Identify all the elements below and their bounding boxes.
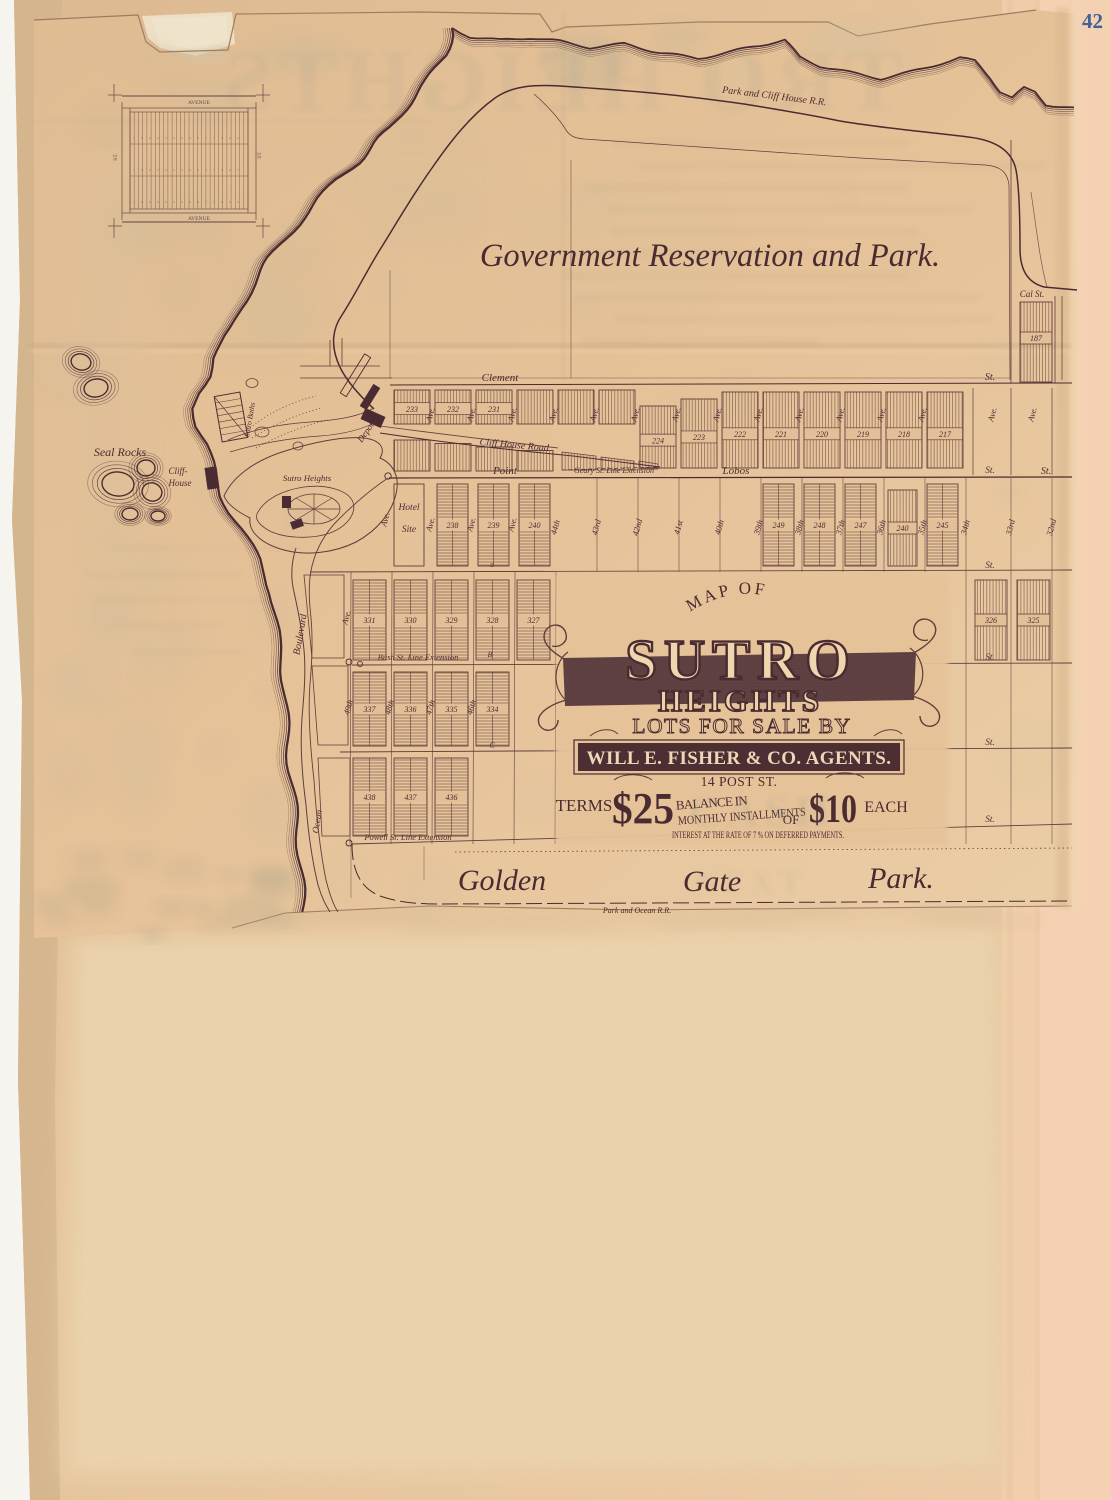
svg-text:231: 231 [488,405,500,414]
svg-text:$25: $25 [612,784,674,833]
svg-text:334: 334 [486,705,499,714]
svg-text:Sutro Heights: Sutro Heights [283,473,332,483]
svg-text:St.: St. [985,372,995,383]
svg-text:EACH: EACH [864,799,908,816]
svg-text:217: 217 [939,430,952,439]
svg-text:221: 221 [775,430,787,439]
svg-text:249: 249 [773,521,785,530]
svg-text:233: 233 [406,405,418,414]
svg-text:Cliff-: Cliff- [168,466,187,476]
svg-text:438: 438 [364,793,376,802]
svg-text:NEXT: NEXT [694,865,806,901]
svg-text:St.: St. [1041,466,1051,477]
svg-text:248: 248 [814,521,826,530]
svg-text:239: 239 [488,521,500,530]
svg-text:42: 42 [1082,9,1103,33]
svg-text:224: 224 [652,436,664,445]
svg-text:Government Reservation and Par: Government Reservation and Park. [480,238,940,274]
svg-text:223: 223 [693,433,705,442]
svg-text:220: 220 [816,430,828,439]
svg-text:218: 218 [898,430,910,439]
svg-text:HEIGHTS: HEIGHTS [658,683,822,718]
svg-text:Clement: Clement [482,372,520,384]
svg-text:LOTS FOR SALE BY: LOTS FOR SALE BY [632,714,851,738]
svg-text:187: 187 [1030,334,1043,343]
svg-text:St.: St. [985,560,994,570]
svg-text:222: 222 [734,430,746,439]
svg-text:Golden: Golden [458,864,546,897]
svg-text:WILL E. FISHER & CO. AGENTS.: WILL E. FISHER & CO. AGENTS. [587,748,892,769]
svg-text:St.: St. [985,737,994,747]
svg-text:TRO HEIGHTS: TRO HEIGHTS [218,33,903,130]
svg-text:AVENUE: AVENUE [188,216,211,222]
svg-text:ST.: ST. [113,153,119,161]
svg-text:240: 240 [897,524,909,533]
svg-text:232: 232 [447,405,459,414]
svg-text:335: 335 [445,705,458,714]
svg-text:330: 330 [404,616,417,625]
svg-text:240: 240 [529,521,541,530]
svg-text:238: 238 [447,521,459,530]
svg-text:436: 436 [446,793,458,802]
svg-text:336: 336 [404,705,417,714]
svg-text:219: 219 [857,430,869,439]
svg-text:AVENUE: AVENUE [188,100,211,106]
svg-text:328: 328 [486,616,499,625]
svg-text:ST.: ST. [257,151,263,159]
svg-text:247: 247 [855,521,868,530]
svg-text:Site: Site [402,525,416,535]
svg-text:Hotel: Hotel [397,503,419,513]
svg-text:325: 325 [1027,616,1040,625]
svg-text:327: 327 [527,616,541,625]
svg-text:337: 337 [363,705,377,714]
svg-text:Cal St.: Cal St. [1020,289,1045,299]
svg-text:CASH: CASH [689,787,835,836]
svg-text:St.: St. [985,465,994,475]
svg-text:TERMS: TERMS [556,796,613,815]
svg-text:331: 331 [363,616,376,625]
svg-text:437: 437 [405,793,418,802]
svg-text:House: House [168,478,192,488]
svg-text:Park and Ocean R.R.: Park and Ocean R.R. [602,906,671,915]
svg-text:245: 245 [937,521,949,530]
svg-text:329: 329 [445,616,458,625]
svg-text:326: 326 [984,616,997,625]
svg-text:Park.: Park. [867,862,934,895]
svg-text:St.: St. [985,814,994,824]
